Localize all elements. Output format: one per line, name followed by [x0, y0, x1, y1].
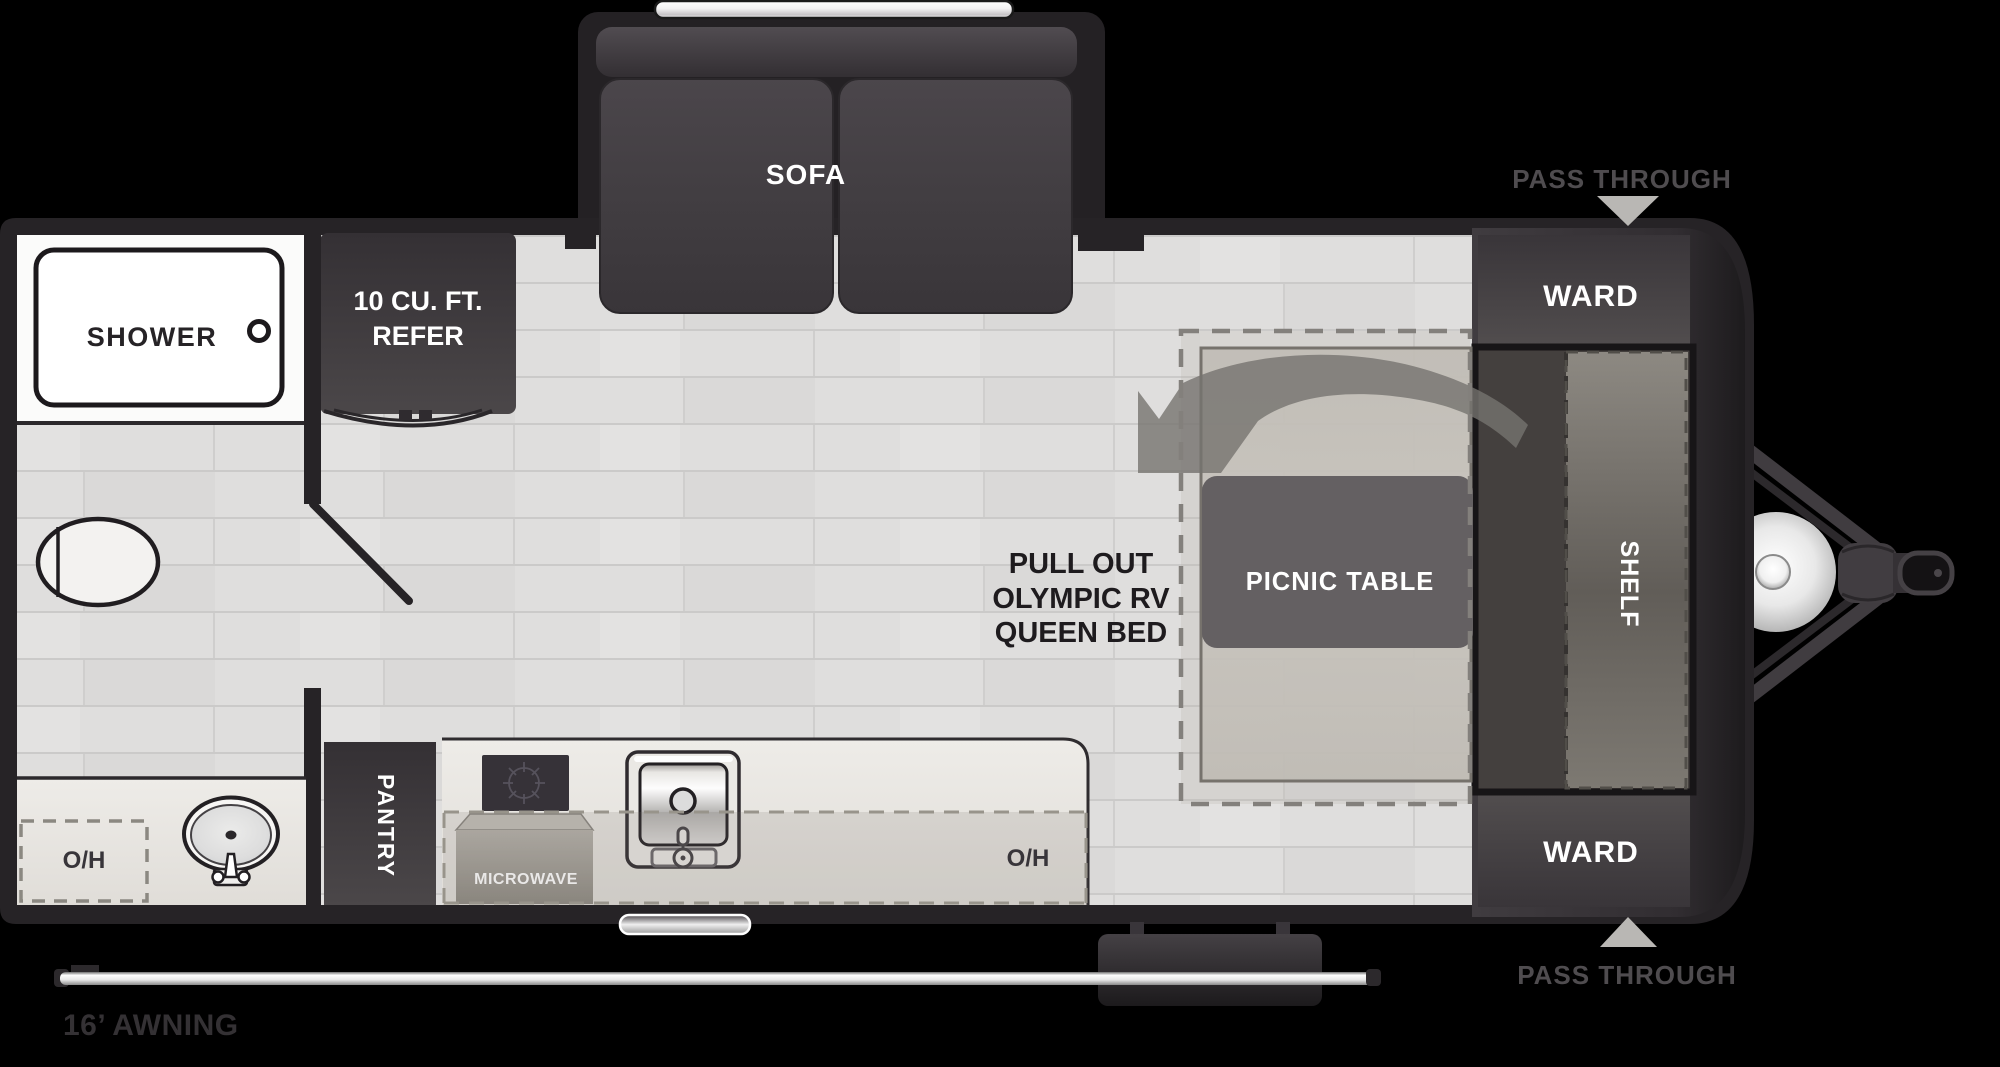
svg-text:PASS THROUGH: PASS THROUGH	[1517, 960, 1737, 990]
svg-text:OLYMPIC RV: OLYMPIC RV	[992, 583, 1170, 615]
svg-text:PANTRY: PANTRY	[373, 774, 399, 878]
svg-text:SOFA: SOFA	[766, 159, 846, 190]
svg-text:WARD: WARD	[1543, 836, 1639, 869]
svg-text:PASS THROUGH: PASS THROUGH	[1512, 164, 1732, 194]
svg-text:SHOWER: SHOWER	[87, 322, 218, 352]
svg-text:SHELF: SHELF	[1615, 541, 1643, 628]
svg-text:10 CU. FT.: 10 CU. FT.	[353, 286, 482, 316]
svg-text:WARD: WARD	[1543, 280, 1639, 313]
svg-text:PICNIC TABLE: PICNIC TABLE	[1246, 568, 1435, 596]
svg-text:PULL OUT: PULL OUT	[1009, 548, 1154, 580]
svg-text:O/H: O/H	[63, 847, 106, 874]
svg-text:QUEEN BED: QUEEN BED	[995, 617, 1167, 649]
svg-text:O/H: O/H	[1007, 845, 1050, 872]
svg-text:16’ AWNING: 16’ AWNING	[63, 1009, 239, 1042]
svg-text:REFER: REFER	[372, 321, 464, 351]
